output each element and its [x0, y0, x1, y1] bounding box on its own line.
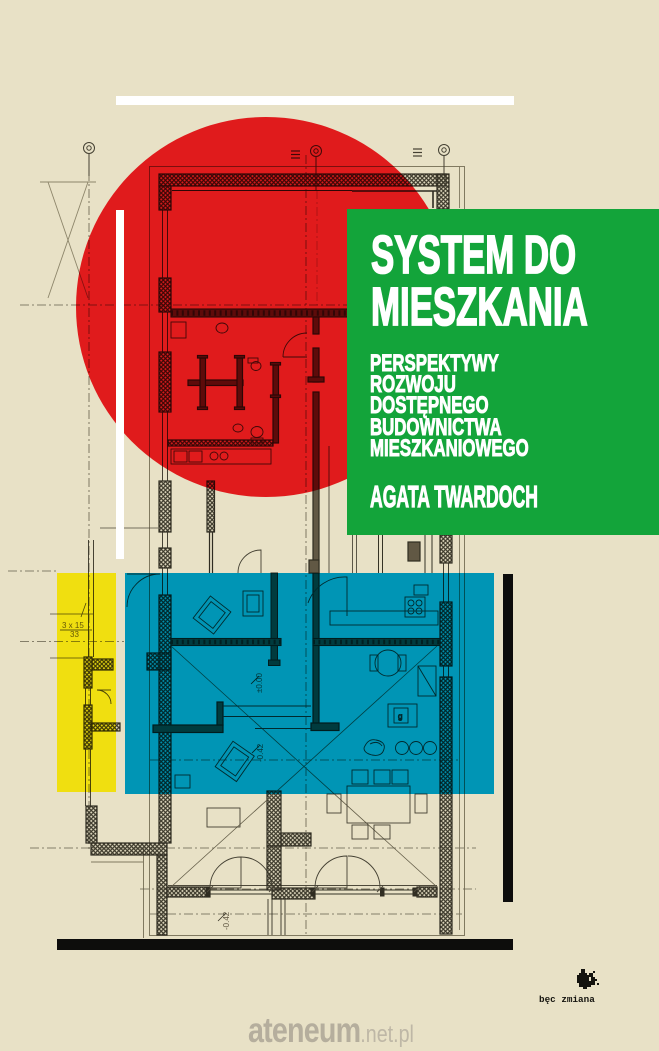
svg-text:±0.00: ±0.00	[255, 672, 264, 693]
svg-text:33: 33	[70, 630, 79, 639]
svg-text:-0.42: -0.42	[256, 743, 265, 762]
svg-text:-0.42: -0.42	[222, 911, 231, 930]
svg-text:3 x 15: 3 x 15	[62, 621, 84, 630]
svg-text:g: g	[398, 712, 402, 721]
